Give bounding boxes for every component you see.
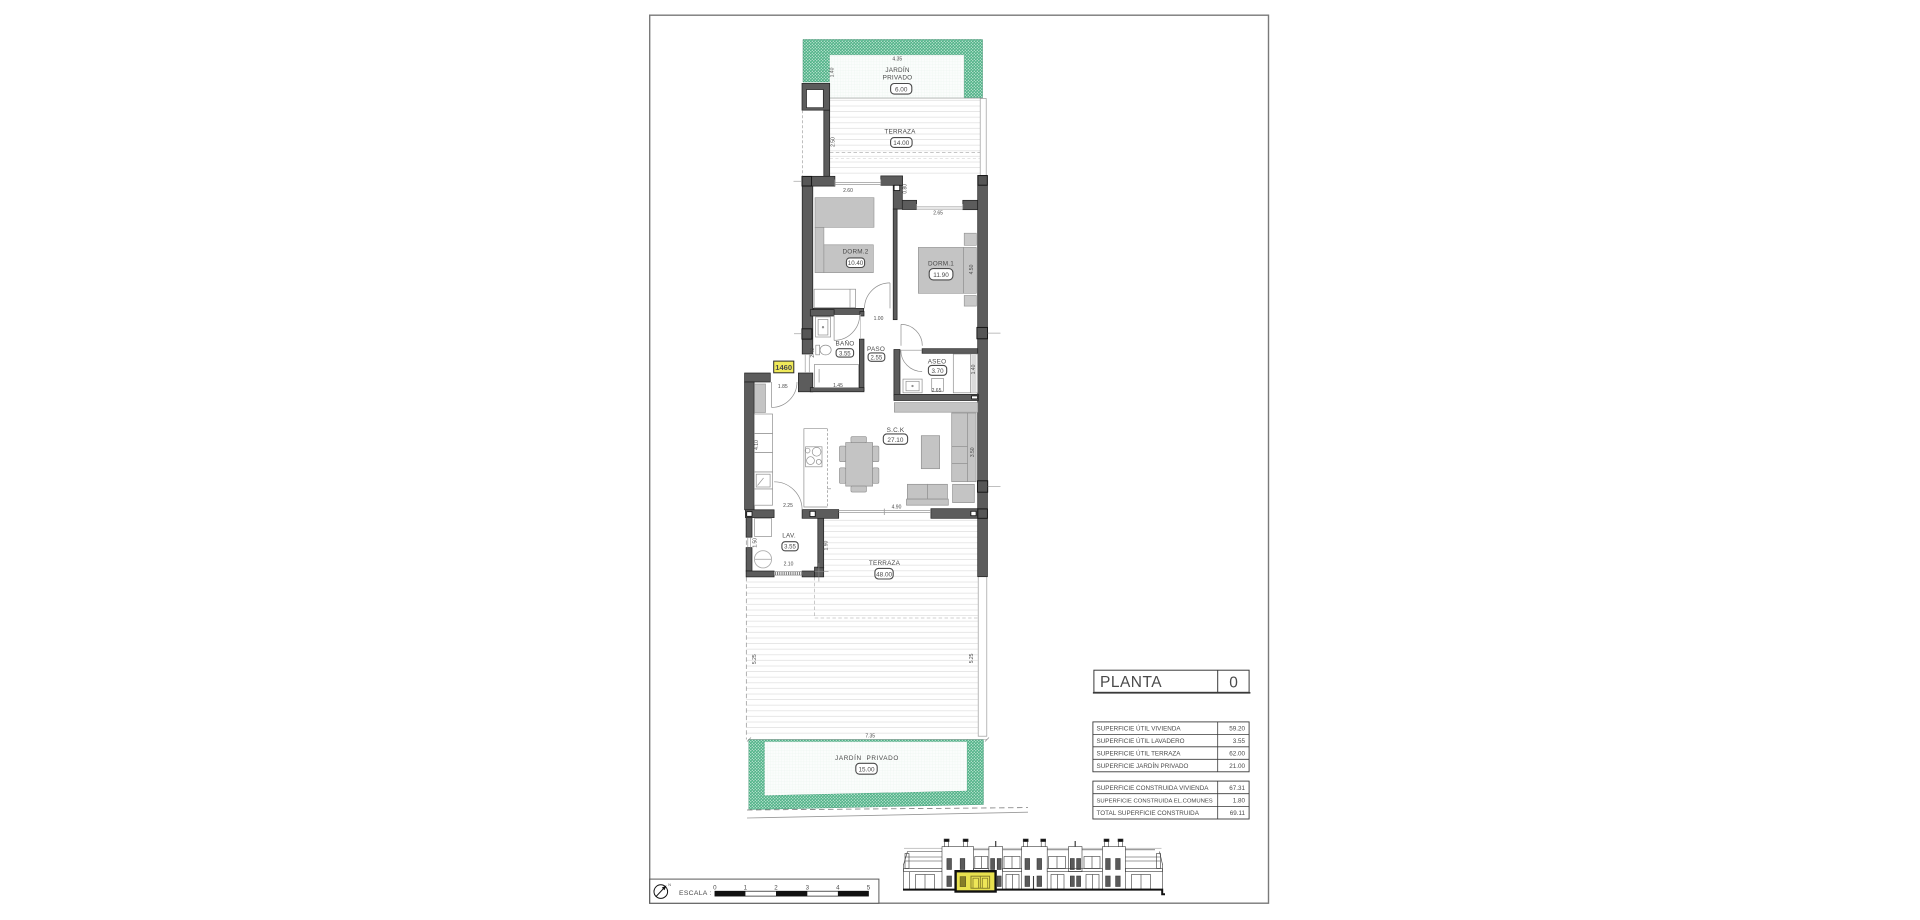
svg-text:3.55: 3.55 <box>1233 738 1246 745</box>
svg-text:3.55: 3.55 <box>784 545 796 551</box>
svg-text:59.20: 59.20 <box>1229 726 1245 733</box>
svg-text:DORM.2: DORM.2 <box>842 249 868 256</box>
svg-text:2.65: 2.65 <box>933 211 943 217</box>
svg-text:69.11: 69.11 <box>1230 810 1246 817</box>
svg-text:1.40: 1.40 <box>830 67 836 77</box>
svg-text:21.00: 21.00 <box>1229 763 1245 770</box>
svg-text:SUPERFICIE CONSTRUIDA EL.COMUN: SUPERFICIE CONSTRUIDA EL.COMUNES <box>1097 798 1213 804</box>
svg-text:6.00: 6.00 <box>895 86 908 93</box>
svg-text:48.00: 48.00 <box>876 571 892 578</box>
svg-text:3.70: 3.70 <box>931 368 944 375</box>
svg-text:1.85: 1.85 <box>778 384 788 390</box>
svg-text:1460: 1460 <box>775 363 792 372</box>
svg-text:2.60: 2.60 <box>843 188 853 194</box>
svg-text:2.25: 2.25 <box>783 503 793 509</box>
svg-text:SUPERFICIE CONSTRUIDA VIVIENDA: SUPERFICIE CONSTRUIDA VIVIENDA <box>1097 785 1210 792</box>
svg-text:1.50: 1.50 <box>752 538 758 548</box>
svg-text:3.55: 3.55 <box>839 351 851 357</box>
svg-text:1.40: 1.40 <box>971 364 977 374</box>
svg-text:1: 1 <box>744 884 748 891</box>
svg-text:3.50: 3.50 <box>970 447 976 457</box>
svg-text:2.40: 2.40 <box>810 348 816 358</box>
svg-text:N: N <box>668 883 671 887</box>
svg-text:1.00: 1.00 <box>874 316 884 322</box>
svg-text:PRIVADO: PRIVADO <box>883 75 913 82</box>
svg-text:7.35: 7.35 <box>865 733 875 739</box>
svg-text:JARDÍN: JARDÍN <box>885 65 909 74</box>
svg-text:2.65: 2.65 <box>932 388 942 394</box>
svg-text:BAÑO: BAÑO <box>836 338 855 347</box>
svg-text:TERRAZA: TERRAZA <box>869 560 901 567</box>
svg-text:LAV.: LAV. <box>782 532 796 539</box>
svg-text:1.45: 1.45 <box>833 383 843 389</box>
svg-text:5.25: 5.25 <box>969 653 975 663</box>
svg-text:10.40: 10.40 <box>848 260 864 267</box>
svg-text:SUPERFICIE ÚTIL TERRAZA: SUPERFICIE ÚTIL TERRAZA <box>1097 748 1182 757</box>
svg-text:DORM.1: DORM.1 <box>928 260 954 267</box>
svg-text:TERRAZA: TERRAZA <box>884 129 916 136</box>
svg-text:JARDÍN PRIVADO: JARDÍN PRIVADO <box>835 753 899 762</box>
svg-text:2.50: 2.50 <box>830 137 836 147</box>
svg-text:4.10: 4.10 <box>754 440 760 450</box>
svg-text:2.55: 2.55 <box>871 356 883 362</box>
svg-text:0: 0 <box>713 884 717 891</box>
svg-text:S.C.K: S.C.K <box>887 427 905 434</box>
svg-text:SUPERFICIE ÚTIL LAVADERO: SUPERFICIE ÚTIL LAVADERO <box>1097 736 1185 745</box>
svg-text:1.90: 1.90 <box>823 541 829 551</box>
svg-text:11.90: 11.90 <box>933 272 949 279</box>
svg-text:TOTAL SUPERFICIE CONSTRUIDA: TOTAL SUPERFICIE CONSTRUIDA <box>1097 810 1200 817</box>
svg-text:PLANTA: PLANTA <box>1100 674 1162 691</box>
svg-text:67.31: 67.31 <box>1229 785 1245 792</box>
svg-text:0: 0 <box>1229 675 1238 692</box>
svg-text:1.80: 1.80 <box>1233 797 1246 804</box>
svg-text:2.10: 2.10 <box>784 562 794 568</box>
svg-text:2: 2 <box>774 884 778 891</box>
svg-text:5.25: 5.25 <box>752 654 758 664</box>
svg-text:3: 3 <box>806 884 810 891</box>
svg-text:0.80: 0.80 <box>903 184 909 194</box>
svg-text:5: 5 <box>867 884 871 891</box>
svg-text:SUPERFICIE JARDÍN PRIVADO: SUPERFICIE JARDÍN PRIVADO <box>1097 761 1189 770</box>
svg-text:4.50: 4.50 <box>969 264 975 274</box>
svg-text:ESCALA :: ESCALA : <box>679 890 712 897</box>
svg-text:62.00: 62.00 <box>1229 750 1245 757</box>
svg-text:27.10: 27.10 <box>887 437 903 444</box>
svg-text:SUPERFICIE ÚTIL VIVIENDA: SUPERFICIE ÚTIL VIVIENDA <box>1097 724 1182 733</box>
svg-text:14.00: 14.00 <box>893 140 909 147</box>
svg-text:PASO: PASO <box>867 346 885 353</box>
svg-text:ASEO: ASEO <box>928 358 947 365</box>
svg-text:4.90: 4.90 <box>892 504 902 510</box>
svg-text:15.00: 15.00 <box>859 766 875 773</box>
svg-text:4.35: 4.35 <box>892 57 902 63</box>
svg-text:4: 4 <box>836 884 840 891</box>
